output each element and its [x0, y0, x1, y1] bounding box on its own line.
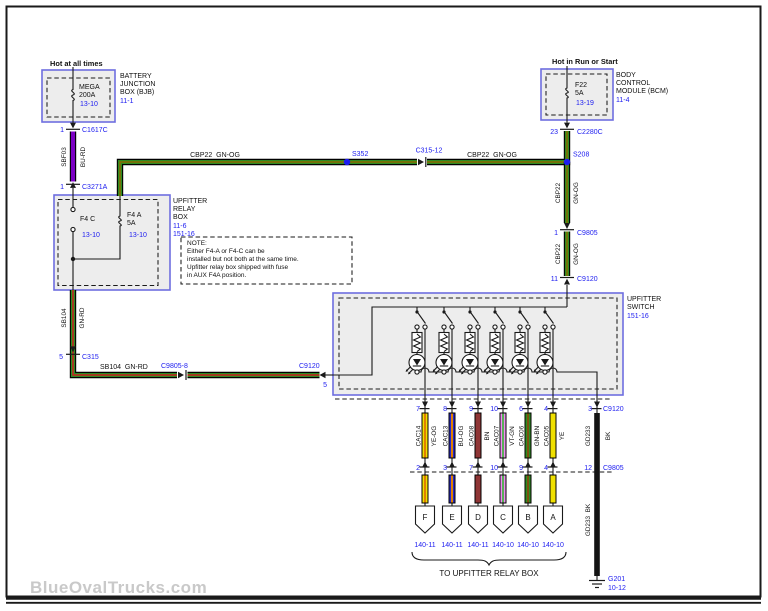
connector-c2280c-marker — [560, 123, 574, 130]
page-ref-f: 140-11 — [414, 542, 435, 549]
connector-c9120-right-marker — [560, 278, 574, 285]
watermark: BlueOvalTrucks.com — [30, 578, 207, 597]
page-ref-c: 140-10 — [492, 542, 514, 549]
note-line-1: NOTE: — [187, 240, 207, 247]
wire-circuit-label-a: CAC05 — [544, 425, 551, 446]
cbp22-drop1-color: GN-OG — [573, 182, 580, 204]
output-column-e: 8 3 CAC13 BU-OG E 140-11 — [441, 406, 465, 549]
page-ref-b: 140-10 — [517, 542, 539, 549]
c3271a-pin: 1 — [60, 184, 64, 191]
cbp22-drop1-circuit: CBP22 — [555, 182, 562, 203]
pin-c9805-ground: 12 — [584, 465, 592, 472]
group-brace — [412, 552, 566, 565]
cbp22-drop2-color: GN-OG — [573, 243, 580, 265]
wire-color-label-f: YE-OG — [431, 426, 438, 447]
c9805-8-name: C9805-8 — [161, 363, 188, 370]
c9120-right-name: C9120 — [577, 276, 598, 283]
bjb-name-3: BOX (BJB) — [120, 89, 154, 96]
wire-cbp22-gn-og-main — [120, 131, 567, 196]
wire-circuit-label-c: CAC07 — [494, 425, 501, 446]
s352-name: S352 — [352, 151, 368, 158]
page-ref-e: 140-11 — [441, 542, 462, 549]
switch-box-name-1: UPFITTER — [627, 296, 661, 303]
output-column-a: 4 4 CAC05 YE A 140-10 — [542, 406, 566, 549]
ground-name: G201 — [608, 576, 625, 583]
pin-c9805-c: 10 — [490, 465, 498, 472]
wire-circuit-label-e: CAC13 — [443, 425, 450, 446]
wiring-diagram-page: 7 2 CAC14 YE-OG F 140-11 8 3 CAC13 BU-OG… — [0, 0, 768, 611]
bcm-name-1: BODY — [616, 72, 636, 79]
connector-c9120-left-marker — [320, 372, 334, 379]
fuse-f4c-page: 13-10 — [82, 232, 100, 239]
page-ref-a: 140-10 — [542, 542, 564, 549]
switch-box-page: 151-16 — [627, 313, 649, 320]
terminal-letter-e: E — [449, 513, 454, 522]
main-run-labels: CBP22 GN-OG S352 C315-12 CBP22 GN-OG S20… — [190, 148, 589, 160]
sb104-horizontal-label: SB104 GN-RD — [100, 364, 148, 371]
pin-c9120-d: 9 — [469, 406, 473, 413]
bcm-name-3: MODULE (BCM) — [616, 88, 668, 95]
hot-in-run-label: Hot in Run or Start — [552, 57, 618, 66]
wire-color-label-e: BU-OG — [458, 426, 465, 447]
relay-box-name-2: RELAY — [173, 206, 196, 213]
connector-c9805-8-inline — [178, 370, 186, 380]
output-column-f: 7 2 CAC14 YE-OG F 140-11 — [414, 406, 438, 549]
connector-s352-splice — [344, 159, 350, 165]
cbp22-label-left: CBP22 GN-OG — [190, 152, 240, 159]
wire-color-label-c: VT-GN — [509, 426, 516, 446]
bjb-name-2: JUNCTION — [120, 81, 155, 88]
cbp22-drop2-circuit: CBP22 — [555, 243, 562, 264]
pin-c9120-a: 4 — [544, 406, 548, 413]
connector-c1617c-marker — [66, 123, 80, 130]
page-ref-d: 140-11 — [467, 542, 488, 549]
c9805-right-name: C9805 — [577, 230, 598, 237]
wire-circuit-label-f: CAC14 — [416, 425, 423, 446]
relay-box-name-1: UPFITTER — [173, 198, 207, 205]
pin-c9120-f: 7 — [416, 406, 420, 413]
wire-color-label-d: BN — [484, 431, 491, 440]
terminal-letter-b: B — [525, 513, 530, 522]
relay-box-name-3: BOX — [173, 214, 188, 221]
relay-box-page-1: 11-6 — [173, 223, 187, 230]
pin-c9120-e: 8 — [443, 406, 447, 413]
fuse-f4a-rating: 5A — [127, 220, 136, 227]
pin-c9120-c: 10 — [490, 406, 498, 413]
fuse-f4a-label: F4 A — [127, 212, 142, 219]
pin-c9805-a: 4 — [544, 465, 548, 472]
pin-c9805-f: 2 — [416, 465, 420, 472]
output-column-b: 6 9 CAC06 GN-BN B 140-10 — [517, 406, 541, 549]
wire-color-label-a: YE — [559, 432, 566, 441]
c9120-left-pin: 5 — [323, 382, 327, 389]
c9120-right-pin: 11 — [551, 276, 558, 283]
bjb-page: 11-1 — [120, 98, 134, 105]
mega-fuse-name: MEGA — [79, 84, 100, 91]
note-line-2: Either F4-A or F4-C can be — [187, 248, 265, 255]
c1617c-name: C1617C — [82, 127, 108, 134]
cbp22-label-right: CBP22 GN-OG — [467, 152, 517, 159]
note-line-3: installed but not both at the same time. — [187, 256, 299, 263]
c9805-right-pin: 1 — [554, 230, 558, 237]
c2280c-name: C2280C — [577, 129, 603, 136]
connector-s208-splice — [564, 159, 570, 165]
bcm-name-2: CONTROL — [616, 80, 650, 87]
pin-c9805-b: 9 — [519, 465, 523, 472]
pin-c9120-ground: 3 — [588, 406, 592, 413]
sbf03-circuit-label: SBF03 — [61, 147, 68, 167]
wire-circuit-label-b: CAC06 — [519, 425, 526, 446]
ground-column: 3 12 GD233 BK GD233 BK G201 10-12 — [584, 402, 626, 593]
sb104-circuit-label: SB104 — [61, 308, 68, 328]
fuse-f4c-label: F4 C — [80, 216, 95, 223]
ground-symbol-g201 — [589, 576, 605, 588]
note-line-5: in AUX F4A position. — [187, 272, 246, 279]
c315-name: C315 — [82, 354, 99, 361]
fuse-f4a-page: 13-10 — [129, 232, 147, 239]
wire-circuit-label-ground: GD233 — [585, 425, 592, 446]
relay-box-page-2: 151-16 — [173, 231, 195, 238]
wire-color-label-b: GN-BN — [534, 425, 541, 446]
c9120-left-name: C9120 — [299, 363, 320, 370]
wire-color-label-ground: BK — [605, 431, 612, 440]
terminal-letter-d: D — [475, 513, 481, 522]
connector-c3271a-marker — [66, 182, 80, 188]
switch-box-labels: UPFITTER SWITCH 151-16 — [627, 296, 661, 320]
wire-circuit-label-d: CAC08 — [469, 425, 476, 446]
c1617c-pin: 1 — [60, 127, 64, 134]
pin-c9805-e: 3 — [443, 465, 447, 472]
terminal-letter-c: C — [500, 513, 506, 522]
s208-name: S208 — [573, 152, 589, 159]
sbf03-color-label: BU-RD — [80, 147, 87, 168]
f22-fuse-name: F22 — [575, 82, 587, 89]
wire-sb104-gn-rd — [73, 290, 320, 375]
c3271a-name: C3271A — [82, 184, 108, 191]
hot-at-all-times-label: Hot at all times — [50, 59, 103, 68]
c315-pin: 5 — [59, 354, 63, 361]
connector-c9805-right-marker — [560, 223, 574, 230]
note-line-4: Upfitter relay box shipped with fuse — [187, 264, 289, 271]
wire-gd233-bk — [594, 413, 600, 576]
terminal-letter-f: F — [423, 513, 428, 522]
output-column-d: 9 7 CAC08 BN D 140-11 — [467, 406, 491, 549]
sb104-color-label: GN-RD — [79, 307, 86, 328]
mega-fuse-page: 13-10 — [80, 101, 98, 108]
output-column-c: 10 10 CAC07 VT-GN C 140-10 — [490, 406, 516, 549]
c9120-bottom-name: C9120 — [603, 406, 624, 413]
c315-12-name: C315-12 — [416, 148, 443, 155]
f22-fuse-rating: 5A — [575, 90, 584, 97]
right-drop-labels: CBP22 GN-OG 1 C9805 CBP22 GN-OG 11 C9120 — [551, 182, 598, 283]
c2280c-pin: 23 — [550, 129, 558, 136]
terminal-letter-a: A — [550, 513, 556, 522]
switch-box-name-2: SWITCH — [627, 304, 655, 311]
pin-c9805-d: 7 — [469, 465, 473, 472]
bjb-name-1: BATTERY — [120, 73, 152, 80]
f22-fuse-page: 13-19 — [576, 100, 594, 107]
mega-fuse-rating: 200A — [79, 92, 96, 99]
bcm-page: 11-4 — [616, 97, 630, 104]
relay-box-caption: TO UPFITTER RELAY BOX — [439, 569, 539, 578]
connector-c315-12-inline — [418, 157, 426, 167]
c9805-bottom-name: C9805 — [603, 465, 624, 472]
wire-label-ground-lower: GD233 BK — [585, 503, 592, 536]
pin-c9120-b: 6 — [519, 406, 523, 413]
wiring-diagram: 7 2 CAC14 YE-OG F 140-11 8 3 CAC13 BU-OG… — [0, 0, 768, 611]
ground-page-ref: 10-12 — [608, 585, 626, 592]
